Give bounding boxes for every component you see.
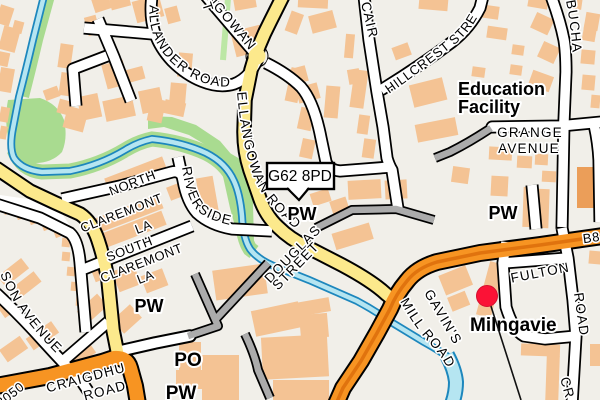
svg-text:PW: PW bbox=[135, 296, 164, 316]
svg-text:G62 8PD: G62 8PD bbox=[268, 168, 332, 185]
svg-text:PO: PO bbox=[174, 350, 201, 371]
svg-text:Facility: Facility bbox=[458, 97, 520, 117]
svg-text:AVENUE: AVENUE bbox=[498, 141, 560, 156]
svg-text:PW: PW bbox=[288, 204, 317, 224]
svg-text:Milngavie: Milngavie bbox=[470, 315, 557, 336]
svg-text:GRANGE: GRANGE bbox=[497, 125, 563, 140]
svg-text:PW: PW bbox=[166, 383, 197, 400]
svg-text:B8: B8 bbox=[582, 229, 600, 246]
svg-text:PW: PW bbox=[489, 203, 518, 223]
svg-text:Education: Education bbox=[458, 79, 545, 99]
